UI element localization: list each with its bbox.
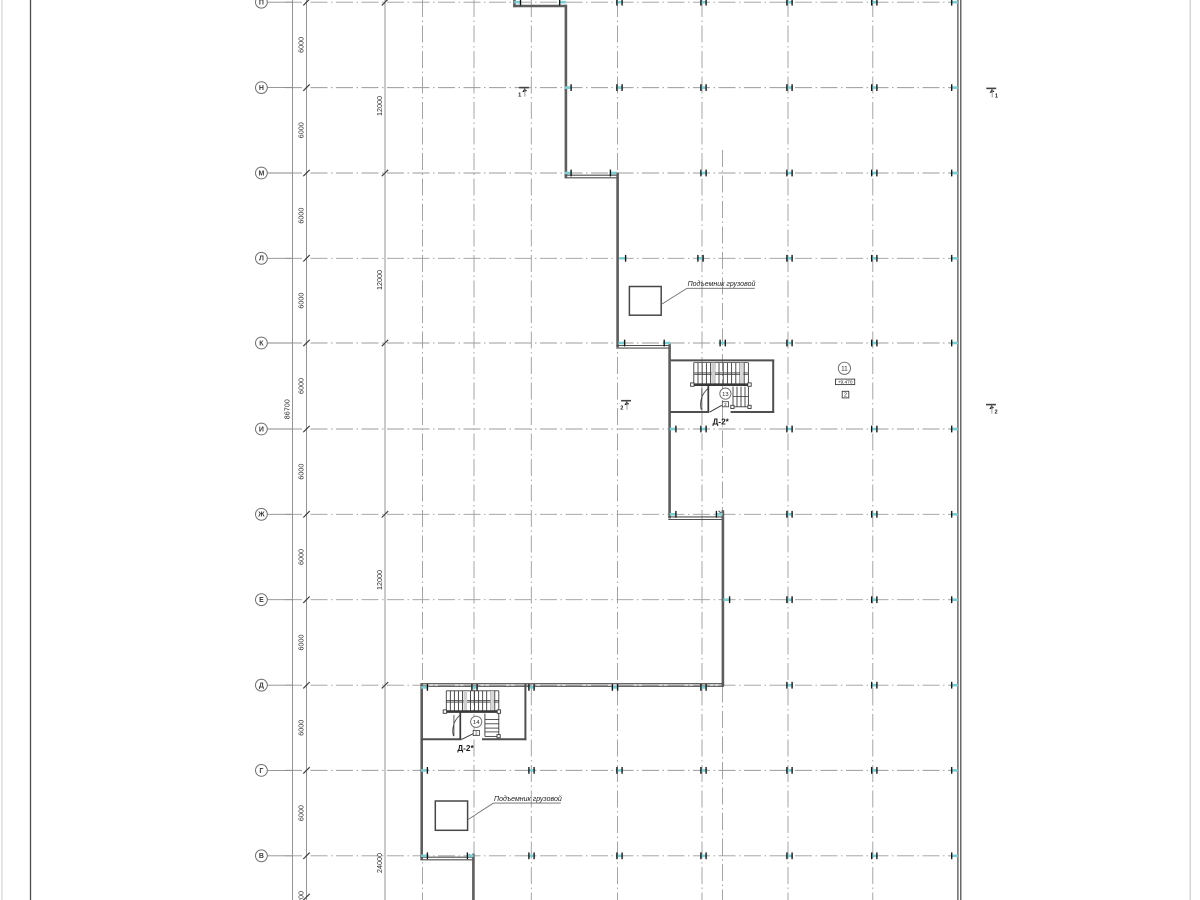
svg-text:Г: Г [259, 768, 263, 775]
svg-text:6000: 6000 [296, 464, 305, 480]
svg-text:6000: 6000 [296, 208, 305, 224]
svg-text:2: 2 [620, 406, 623, 412]
svg-text:Л: Л [259, 256, 264, 263]
svg-text:Подъемник грузовой: Подъемник грузовой [688, 280, 756, 288]
svg-text:Д-2*: Д-2* [713, 418, 730, 427]
svg-text:П: П [259, 0, 264, 7]
svg-text:24000: 24000 [375, 853, 384, 873]
svg-text:6000: 6000 [296, 122, 305, 138]
svg-text:Н: Н [259, 85, 264, 92]
svg-text:13: 13 [722, 392, 728, 398]
svg-text:2: 2 [724, 402, 727, 407]
svg-text:12000: 12000 [375, 570, 384, 590]
svg-text:14: 14 [473, 720, 480, 726]
svg-text:Д-2*: Д-2* [457, 744, 474, 753]
svg-text:6000: 6000 [296, 805, 305, 821]
svg-text:86700: 86700 [283, 399, 292, 419]
svg-text:12000: 12000 [375, 270, 384, 290]
svg-text:Ж: Ж [257, 512, 265, 519]
svg-text:1: 1 [518, 93, 521, 99]
svg-text:6000: 6000 [296, 549, 305, 565]
svg-text:6000: 6000 [296, 720, 305, 736]
svg-text:2: 2 [475, 731, 478, 736]
svg-text:6000: 6000 [296, 378, 305, 394]
svg-text:В: В [259, 853, 264, 860]
svg-text:И: И [259, 426, 264, 433]
svg-text:Е: Е [259, 597, 264, 604]
svg-text:Д: Д [259, 683, 264, 690]
svg-text:+9.470: +9.470 [838, 380, 853, 386]
svg-text:Подъемник грузовой: Подъемник грузовой [494, 795, 562, 803]
svg-text:6000: 6000 [296, 634, 305, 650]
svg-text:11: 11 [841, 366, 848, 373]
svg-text:М: М [258, 170, 264, 177]
svg-text:К: К [259, 340, 264, 347]
svg-text:6000: 6000 [296, 293, 305, 309]
svg-text:1: 1 [995, 93, 998, 99]
svg-text:6000: 6000 [296, 37, 305, 53]
svg-text:8200: 8200 [296, 891, 305, 900]
svg-text:2: 2 [844, 393, 847, 399]
svg-text:2: 2 [995, 410, 998, 416]
svg-text:12000: 12000 [375, 96, 384, 116]
